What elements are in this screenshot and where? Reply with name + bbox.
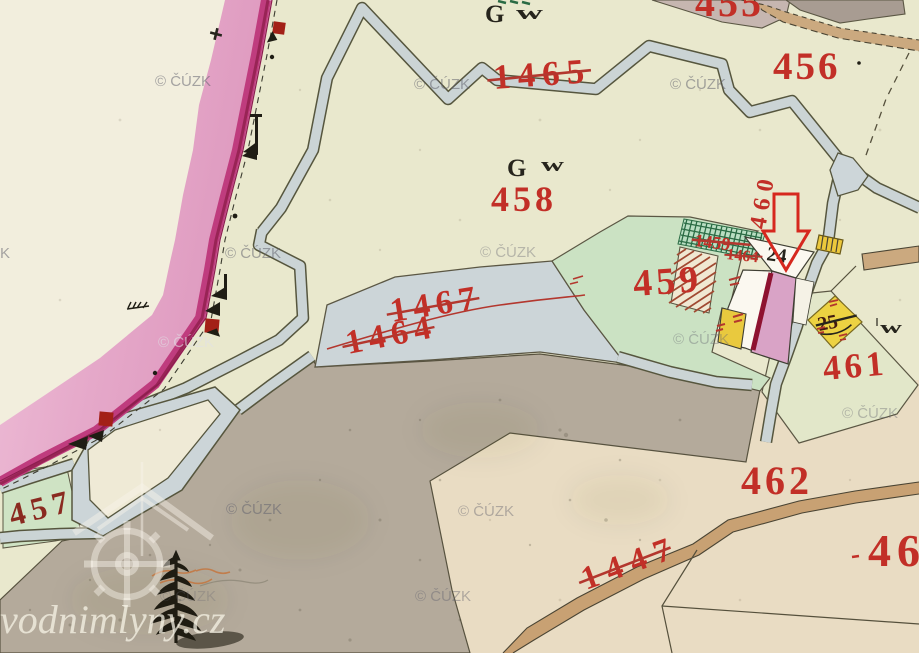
- svg-text:© ČÚZK: © ČÚZK: [414, 76, 470, 93]
- svg-text:© ČÚZK: © ČÚZK: [415, 588, 471, 605]
- svg-text:G: G: [485, 1, 504, 28]
- svg-text:© ČÚZK: © ČÚZK: [673, 331, 729, 348]
- svg-text:© ČÚZK: © ČÚZK: [0, 245, 10, 262]
- svg-text:© ČÚZK: © ČÚZK: [458, 503, 514, 520]
- svg-text:© ČÚZK: © ČÚZK: [480, 244, 536, 261]
- svg-text:w: w: [541, 155, 564, 176]
- svg-text:461: 461: [821, 343, 889, 387]
- svg-text:459: 459: [632, 258, 704, 305]
- svg-text:455: 455: [695, 0, 764, 25]
- svg-text:G: G: [507, 155, 526, 182]
- svg-text:© ČÚZK: © ČÚZK: [155, 73, 211, 90]
- svg-text:458: 458: [491, 179, 557, 219]
- svg-text:© ČÚZK: © ČÚZK: [226, 501, 282, 518]
- svg-text:46: 46: [868, 525, 919, 576]
- svg-text:w: w: [880, 318, 903, 337]
- svg-text:© ČÚZK: © ČÚZK: [670, 76, 726, 93]
- svg-text:456: 456: [773, 45, 841, 88]
- svg-text:© ČÚZK: © ČÚZK: [160, 588, 216, 605]
- svg-text:© ČÚZK: © ČÚZK: [225, 245, 281, 262]
- svg-text:© ČÚZK: © ČÚZK: [158, 334, 214, 351]
- svg-text:© ČÚZK: © ČÚZK: [842, 405, 898, 422]
- svg-text:462: 462: [741, 458, 813, 503]
- svg-text:w: w: [516, 3, 544, 24]
